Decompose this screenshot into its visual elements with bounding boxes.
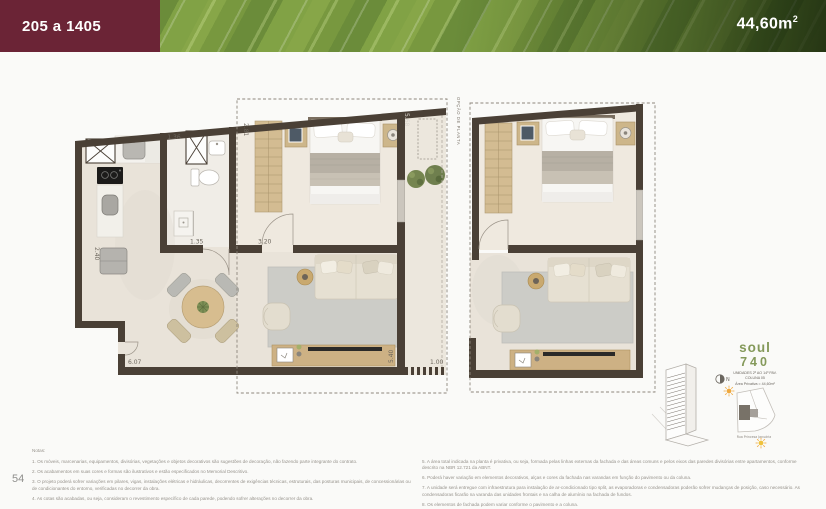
note-item: 8. Os elementos de fachada podem variar … [422, 502, 808, 508]
note-item: 6. Poderá haver variação em elementos de… [422, 475, 808, 481]
units-range-badge: 205 a 1405 [0, 0, 160, 52]
unit-location-extension [750, 409, 758, 417]
units-range-text: 205 a 1405 [0, 18, 101, 35]
option-plan-label: OPÇÃO DE PLANTA [456, 97, 461, 145]
dim-balcony-width: 1.00 [430, 359, 444, 366]
dim-bedroom-width: 3.20 [258, 239, 272, 246]
area-superscript: 2 [793, 14, 798, 24]
bed [540, 115, 615, 202]
dim-living-width: 6.07 [128, 359, 142, 366]
fridge [100, 248, 127, 274]
notes-column-right: 5. A área total indicada na planta é pri… [422, 459, 808, 509]
cooktop [97, 167, 123, 184]
building-illustration [650, 352, 720, 447]
tv-console [272, 345, 395, 367]
washbasin [209, 141, 225, 155]
note-item: 4. As cotas são acabadas, ou seja, consi… [32, 496, 412, 502]
armchair [263, 303, 290, 330]
sofa [548, 258, 630, 302]
tv-console [510, 350, 630, 371]
armchair [493, 305, 520, 332]
dim-living-depth: 5.40 [388, 349, 395, 363]
logo-word: soul [733, 341, 777, 355]
bed [308, 117, 382, 204]
side-table [297, 269, 313, 285]
notes-heading: Notas: [32, 448, 412, 454]
bedroom [485, 115, 635, 213]
dim-balcony-length: 5.68 [403, 113, 410, 127]
street-label: Rua Princesa Januária [737, 435, 772, 439]
dim-kitchen-depth: 2.40 [93, 247, 100, 261]
note-item: 2. Os acabamentos em suas cores e formas… [32, 469, 412, 475]
wardrobe [485, 123, 512, 213]
note-item: 7. A unidade será entregue com infraestr… [422, 485, 808, 498]
site-keyplan: Rua Princesa Januária [723, 385, 811, 449]
brochure-page: 205 a 1405 44,60m2 [0, 0, 826, 509]
toilet [191, 169, 219, 186]
floor-plan-option [468, 100, 658, 395]
notes-column-left: Notas: 1. Os móveis, marcenarias, equipa… [32, 448, 412, 506]
page-number: 54 [12, 473, 24, 485]
living-room [493, 258, 633, 370]
note-item: 5. A área total indicada na planta é pri… [422, 459, 808, 472]
area-label: 44,60m2 [737, 14, 798, 33]
nightstand-right [616, 122, 635, 145]
dim-kitchen-width: 1.36 [167, 134, 181, 141]
dim-bedroom-depth: 2.81 [242, 123, 249, 137]
leaf-banner: 205 a 1405 44,60m2 [0, 0, 826, 52]
balcony-glass-door [398, 180, 405, 222]
soul-740-logo: soul 740 [733, 341, 777, 368]
balcony-glass-door [637, 190, 643, 240]
sun-icon [724, 386, 735, 397]
note-item: 3. O projeto poderá sofrer variações em … [32, 479, 412, 492]
dim-bathroom-width: 1.35 [190, 239, 204, 246]
wardrobe [255, 121, 282, 212]
logo-number: 740 [733, 356, 777, 369]
shower [174, 211, 194, 236]
floor-plan-main: 1.36 2.81 1.35 3.20 5.68 2.40 6.07 5.40 … [75, 95, 460, 395]
sun-icon [756, 438, 767, 449]
nightstand-left [517, 122, 539, 145]
sofa [315, 255, 398, 299]
note-item: 1. Os móveis, marcenarias, equipamentos,… [32, 459, 412, 465]
unit-location-marker [739, 405, 750, 420]
appliance [102, 195, 118, 215]
side-table [528, 273, 544, 289]
